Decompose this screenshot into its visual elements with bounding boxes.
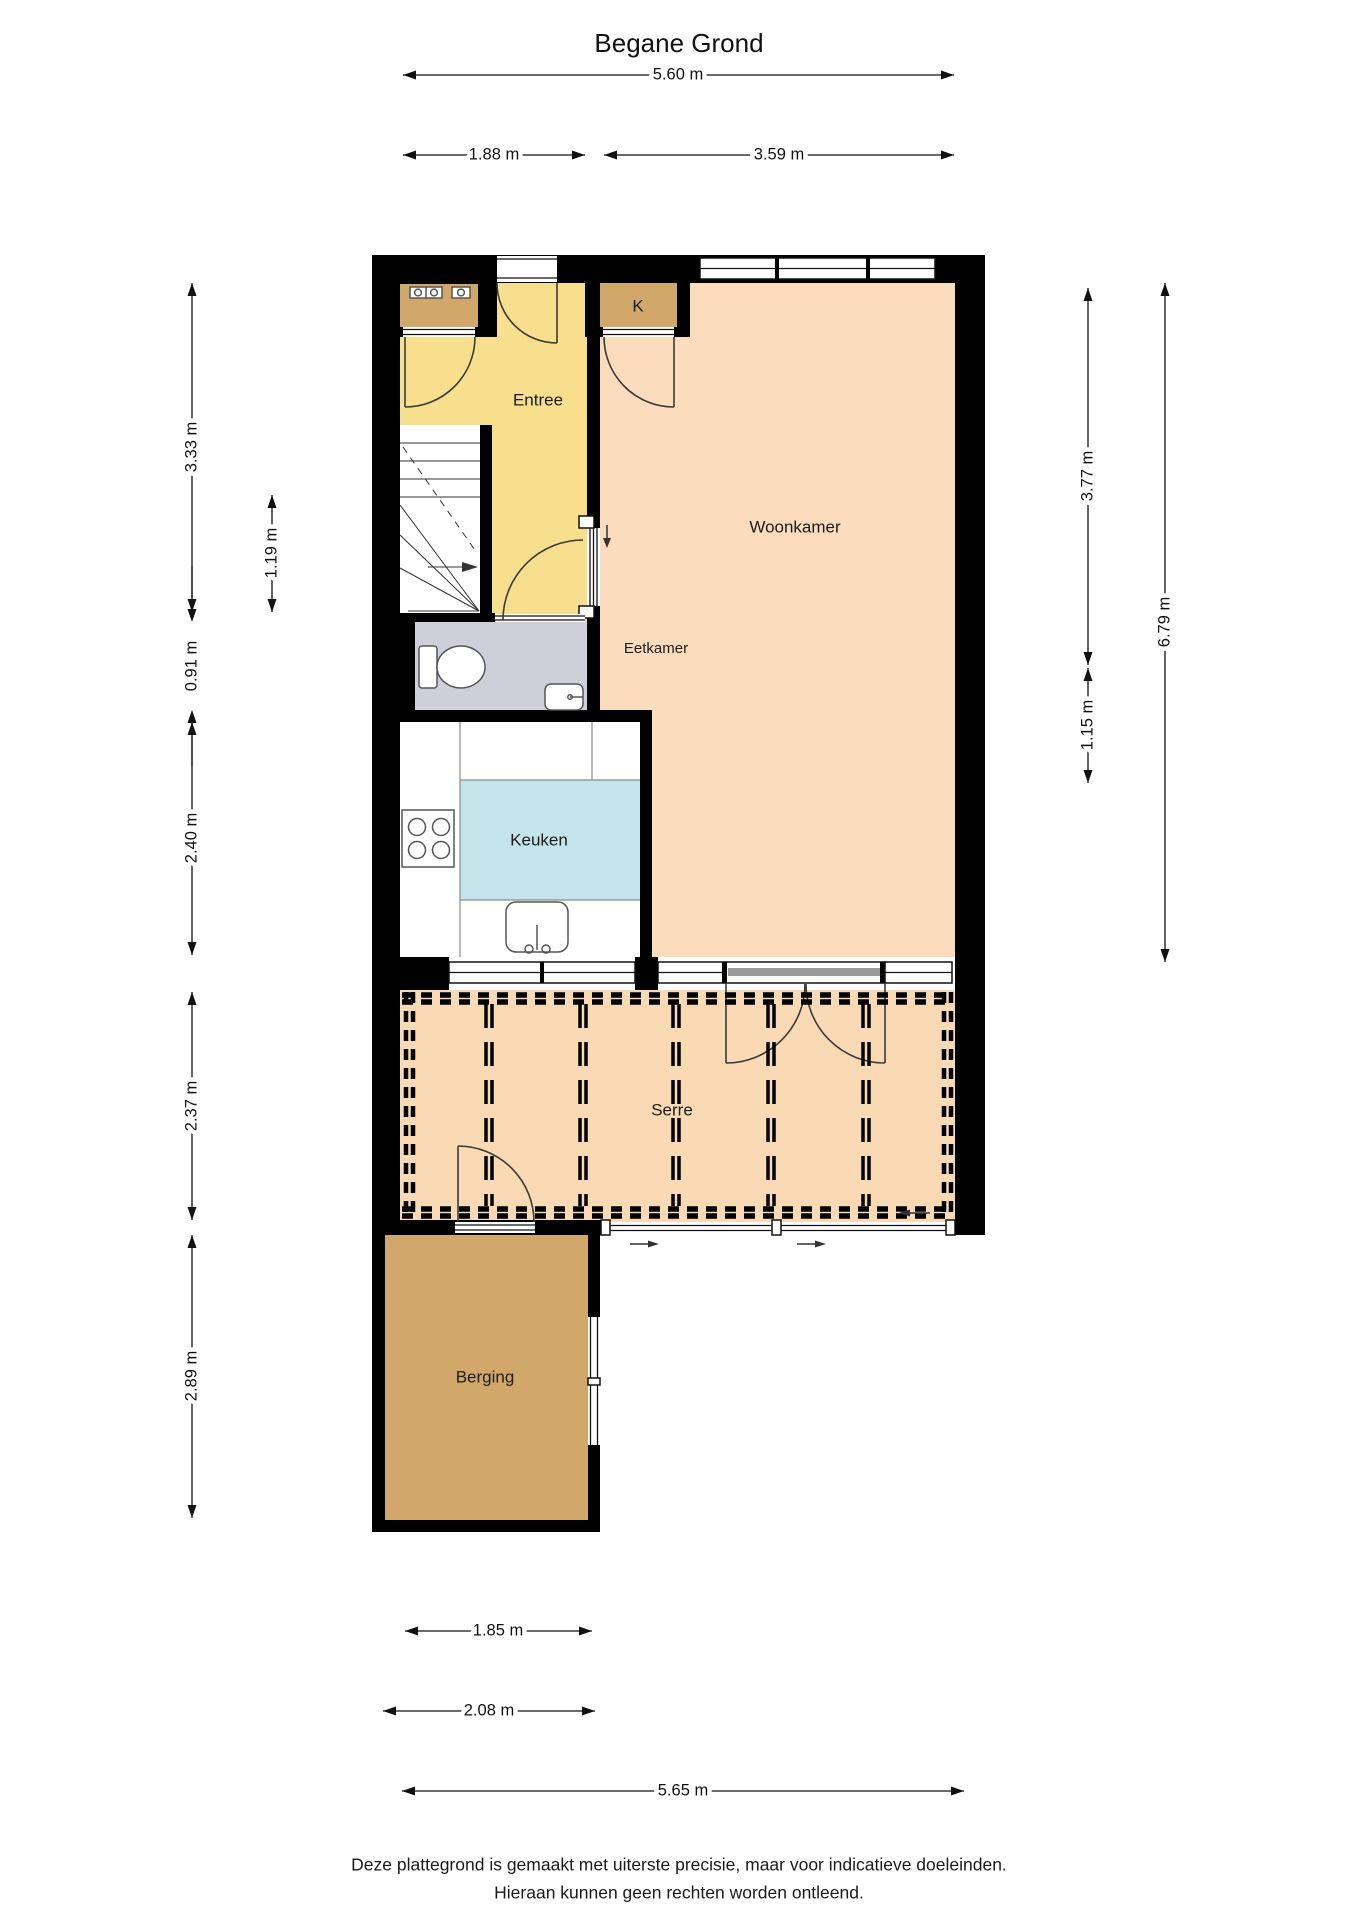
serre-berging-door-threshold bbox=[455, 1222, 535, 1233]
toilet-sink-icon bbox=[545, 684, 583, 710]
dim-left-keuken: 2.40 m bbox=[182, 722, 200, 955]
room-floors bbox=[385, 283, 955, 1520]
svg-text:1.85 m: 1.85 m bbox=[473, 1621, 523, 1639]
meterkast-door-threshold bbox=[403, 327, 475, 337]
berging-label: Berging bbox=[456, 1367, 515, 1386]
disclaimer-line-1: Deze plattegrond is gemaakt met uiterste… bbox=[351, 1855, 1007, 1875]
woonkamer-window-icon bbox=[700, 258, 935, 279]
keuken-label: Keuken bbox=[510, 830, 568, 849]
kast-label: K bbox=[632, 296, 644, 315]
toilet-icon bbox=[419, 646, 485, 688]
dim-left-berging: 2.89 m bbox=[182, 1235, 200, 1518]
dim-right-eetkamer: 1.15 m bbox=[1078, 668, 1096, 783]
dim-top-total: 5.60 m bbox=[403, 65, 954, 83]
stairs-area bbox=[400, 425, 480, 613]
eetkamer-window-left-icon bbox=[658, 962, 726, 983]
svg-text:1.15 m: 1.15 m bbox=[1078, 700, 1096, 750]
svg-text:1.88 m: 1.88 m bbox=[469, 145, 519, 163]
svg-text:3.33 m: 3.33 m bbox=[182, 422, 200, 472]
kast-door-threshold bbox=[603, 327, 674, 337]
stove-icon bbox=[402, 810, 454, 867]
floorplan-canvas: Begane Grond Entree K Woonkamer Eetkamer… bbox=[0, 0, 1358, 1920]
berging-side-door-icon bbox=[588, 1317, 600, 1445]
svg-text:5.60 m: 5.60 m bbox=[653, 65, 703, 83]
svg-text:1.19 m: 1.19 m bbox=[262, 528, 280, 578]
dim-top-entree: 1.88 m bbox=[403, 145, 585, 163]
svg-text:0.91 m: 0.91 m bbox=[182, 641, 200, 691]
eetkamer-window-right-icon bbox=[885, 962, 952, 983]
dim-left-entree: 3.33 m bbox=[182, 283, 200, 612]
svg-text:2.89 m: 2.89 m bbox=[182, 1351, 200, 1401]
dim-right-total: 6.79 m bbox=[1155, 283, 1173, 962]
keuken-window-icon bbox=[449, 962, 635, 983]
floorplan-page: Begane Grond Entree K Woonkamer Eetkamer… bbox=[0, 0, 1358, 1920]
serre-label: Serre bbox=[651, 1100, 693, 1119]
toilet-door-threshold bbox=[495, 614, 585, 622]
front-door-opening bbox=[497, 256, 557, 282]
disclaimer-line-2: Hieraan kunnen geen rechten worden ontle… bbox=[494, 1883, 864, 1903]
meter-icons bbox=[410, 287, 470, 298]
dim-top-woonkamer: 3.59 m bbox=[604, 145, 954, 163]
dim-bottom-total: 5.65 m bbox=[402, 1781, 964, 1799]
dim-left-trap: 1.19 m bbox=[262, 495, 280, 612]
dim-bottom-berging-buiten: 2.08 m bbox=[383, 1701, 595, 1719]
entree-label: Entree bbox=[513, 390, 563, 409]
svg-text:2.37 m: 2.37 m bbox=[182, 1081, 200, 1131]
svg-text:5.65 m: 5.65 m bbox=[658, 1781, 708, 1799]
dim-left-serre: 2.37 m bbox=[182, 992, 200, 1220]
svg-text:2.08 m: 2.08 m bbox=[464, 1701, 514, 1719]
svg-text:3.59 m: 3.59 m bbox=[754, 145, 804, 163]
dim-right-woonkamer: 3.77 m bbox=[1078, 288, 1096, 665]
svg-text:6.79 m: 6.79 m bbox=[1155, 597, 1173, 647]
svg-text:2.40 m: 2.40 m bbox=[182, 813, 200, 863]
serre-sliding-doors bbox=[601, 1220, 955, 1235]
eetkamer-label: Eetkamer bbox=[624, 640, 688, 657]
serre-french-doors bbox=[722, 962, 885, 983]
kitchen-sink-icon bbox=[506, 902, 568, 953]
page-title: Begane Grond bbox=[594, 28, 763, 58]
dim-bottom-berging-binnen: 1.85 m bbox=[405, 1621, 592, 1639]
woonkamer-label: Woonkamer bbox=[749, 517, 841, 536]
svg-text:3.77 m: 3.77 m bbox=[1078, 451, 1096, 501]
